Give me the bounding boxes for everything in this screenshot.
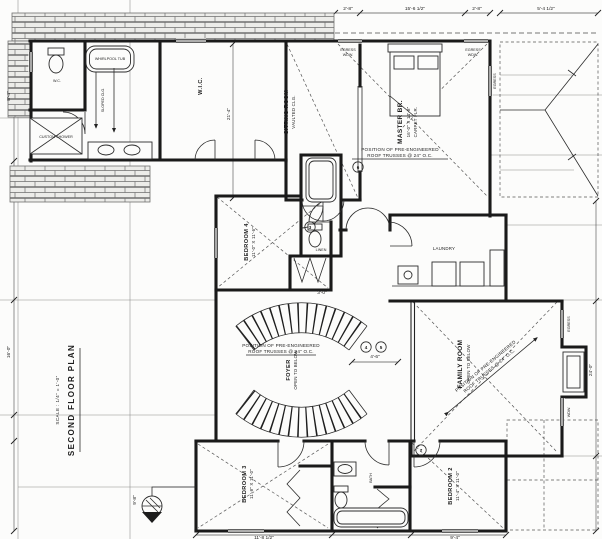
dim-text: 21'-4" bbox=[226, 108, 232, 121]
label-bedroom-4-size: 11'-0" X 11'-6" bbox=[251, 227, 256, 257]
dim-text: 24'-0" bbox=[588, 364, 594, 377]
section-marker bbox=[142, 487, 196, 523]
dim-text: 3'-0" bbox=[317, 290, 327, 296]
jack-jill-tub bbox=[334, 508, 408, 527]
svg-text:5: 5 bbox=[380, 345, 383, 350]
label-foyer: FOYER bbox=[286, 359, 292, 380]
lower-roof-plan bbox=[507, 420, 598, 530]
window bbox=[442, 528, 478, 533]
window bbox=[559, 398, 564, 426]
note-egress-4: WDW. bbox=[567, 407, 571, 417]
dim-text: 11'-8 1/2" bbox=[254, 535, 274, 539]
label-custom-shower: CUSTOM SHOWER bbox=[39, 135, 73, 139]
svg-text:3: 3 bbox=[309, 225, 312, 230]
label-wic: W.I.C. bbox=[198, 77, 204, 95]
dim-text: 5'-4 1/2" bbox=[537, 6, 555, 12]
label-sitting-note: VAULTED CLG. bbox=[291, 95, 296, 128]
svg-text:4: 4 bbox=[365, 345, 368, 350]
label-bedroom-3: BEDROOM 3 bbox=[242, 465, 248, 502]
window bbox=[228, 528, 264, 533]
double-vanity bbox=[88, 142, 152, 159]
note-egress-5: EGRESS bbox=[493, 73, 497, 89]
floor-plan-sheet: SECOND FLOOR PLAN SCALE : 1/4" = 1'-0" M… bbox=[0, 0, 602, 539]
window bbox=[487, 66, 492, 96]
dim-text: 9'-8" bbox=[132, 495, 138, 505]
label-wc: W.C. bbox=[53, 79, 61, 83]
window bbox=[559, 310, 564, 338]
label-bedroom-2-size: 11'-4" X 11'-0" bbox=[455, 471, 460, 501]
plan-scale: SCALE : 1/4" = 1'-0" bbox=[55, 375, 60, 424]
dim-text: 16'-0" bbox=[6, 346, 12, 359]
label-master-size: 16'-0" X 14'-8" bbox=[406, 106, 411, 137]
curved-staircase bbox=[236, 303, 367, 437]
dimension-lines bbox=[11, 10, 601, 538]
note-egress-1a: EGRESS bbox=[340, 48, 356, 52]
dim-text: 4'-6" bbox=[370, 354, 380, 360]
label-sitting-room: SITTING ROOM bbox=[284, 90, 290, 134]
label-master-bedroom: MASTER BR. bbox=[397, 100, 404, 144]
note-sloped-ceiling: SLOPED CLG. bbox=[101, 88, 105, 113]
plan-title: SECOND FLOOR PLAN bbox=[67, 344, 76, 456]
note-truss-foyer-2: ROOF TRUSSES @ 24" O.C. bbox=[248, 349, 313, 354]
label-foyer-note: OPEN TO BELOW bbox=[293, 350, 298, 390]
svg-text:6: 6 bbox=[357, 165, 360, 170]
dimension-ticks bbox=[11, 10, 601, 538]
note-egress-2b: WDW. bbox=[468, 53, 478, 57]
window bbox=[338, 38, 362, 43]
window bbox=[213, 228, 218, 258]
note-truss-foyer-1: POSITION OF PRE-ENGINEERED bbox=[242, 343, 320, 348]
label-laundry: LAUNDRY bbox=[433, 246, 455, 251]
laundry-counter bbox=[392, 250, 504, 286]
hall-bath-tub bbox=[306, 158, 336, 202]
dim-text: 15'-6 1/2" bbox=[405, 6, 426, 12]
ref-tag-5: 5 bbox=[376, 342, 386, 352]
note-truss-master-1: POSITION OF PRE-ENGINEERED bbox=[361, 147, 439, 152]
construction-grid-lines bbox=[0, 0, 602, 539]
note-egress-2a: EGRESS bbox=[465, 48, 481, 52]
note-truss-master-2: ROOF TRUSSES @ 24" O.C. bbox=[367, 153, 432, 158]
window bbox=[176, 38, 206, 43]
note-egress-3: EGRESS bbox=[567, 316, 571, 332]
window bbox=[464, 38, 488, 43]
dim-text: 8'-4" bbox=[6, 91, 12, 101]
label-bath: BATH bbox=[369, 473, 373, 483]
label-linen: LINEN bbox=[316, 248, 327, 252]
balcony-railing bbox=[411, 302, 415, 440]
ref-tag-7: 7 bbox=[416, 445, 426, 455]
label-whirlpool-tub: WHIRLPOOL TUB bbox=[95, 57, 126, 61]
jack-jill-toilet bbox=[334, 486, 348, 508]
interior-walls bbox=[30, 41, 410, 531]
floor-plan-drawing: SECOND FLOOR PLAN SCALE : 1/4" = 1'-0" M… bbox=[0, 0, 602, 539]
label-master-floor: CARPET FLR. bbox=[413, 107, 418, 138]
toilet-water-closet bbox=[48, 48, 64, 73]
label-bedroom-2: BEDROOM 2 bbox=[448, 467, 454, 504]
dim-text: 2'-8" bbox=[472, 6, 482, 12]
label-bedroom-3-size: 11'-8" X 11'-0" bbox=[249, 469, 254, 499]
hip-roof-plan bbox=[335, 33, 598, 197]
family-window-seat bbox=[563, 352, 584, 392]
dim-text: 2'-8" bbox=[343, 6, 353, 12]
window bbox=[28, 52, 33, 72]
label-bedroom-4: BEDROOM 4 bbox=[244, 223, 250, 261]
note-egress-1b: WDW. bbox=[343, 53, 353, 57]
ref-tag-4: 4 bbox=[361, 342, 371, 352]
jack-jill-sink bbox=[334, 462, 356, 476]
svg-text:7: 7 bbox=[420, 448, 423, 453]
dim-text: 9'-4" bbox=[450, 535, 460, 539]
